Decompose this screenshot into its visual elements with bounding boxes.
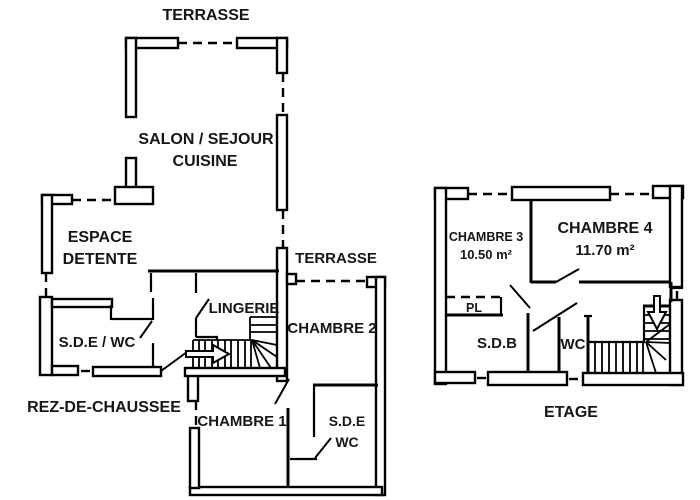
- room-label-pl: PL: [466, 301, 482, 315]
- room-label-salon: SALON / SEJOUR: [138, 131, 274, 148]
- room-label-chambre3: CHAMBRE 3: [449, 230, 523, 244]
- room-label-sdb: S.D.B: [477, 335, 517, 352]
- room-label-cuisine: CUISINE: [173, 153, 238, 170]
- rdc-plan: TERRASSE SALON / SEJOUR CUISINE ESPACE D…: [27, 7, 385, 495]
- room-label-terrasse-right: TERRASSE: [295, 250, 377, 267]
- floor-plan-svg: TERRASSE SALON / SEJOUR CUISINE ESPACE D…: [0, 0, 700, 500]
- room-label-chambre4-area: 11.70 m²: [575, 242, 634, 259]
- room-label-espace: ESPACE: [68, 229, 133, 246]
- room-label-terrasse-top: TERRASSE: [162, 7, 249, 24]
- room-label-chambre2: CHAMBRE 2: [287, 320, 376, 337]
- room-label-chambre1: CHAMBRE 1: [197, 413, 286, 430]
- floor-plan-page: TERRASSE SALON / SEJOUR CUISINE ESPACE D…: [0, 0, 700, 500]
- down-arrow-icon: [648, 296, 666, 329]
- room-label-sde2-wc: WC: [335, 434, 358, 450]
- room-label-sde-wc: S.D.E / WC: [59, 334, 136, 351]
- rdc-staircase: [193, 317, 277, 368]
- room-label-wc: WC: [561, 336, 586, 353]
- etage-door-leaves: [510, 269, 579, 331]
- room-label-detente: DETENTE: [63, 251, 138, 268]
- floor-title-rdc: REZ-DE-CHAUSSEE: [27, 399, 181, 416]
- room-label-chambre3-area: 10.50 m²: [460, 247, 513, 262]
- room-label-sde2: S.D.E: [329, 413, 366, 429]
- room-label-chambre4: CHAMBRE 4: [557, 220, 652, 237]
- room-label-lingerie: LINGERIE: [209, 300, 280, 317]
- etage-plan: CHAMBRE 3 10.50 m² CHAMBRE 4 11.70 m² PL…: [435, 186, 683, 421]
- floor-title-etage: ETAGE: [544, 404, 598, 421]
